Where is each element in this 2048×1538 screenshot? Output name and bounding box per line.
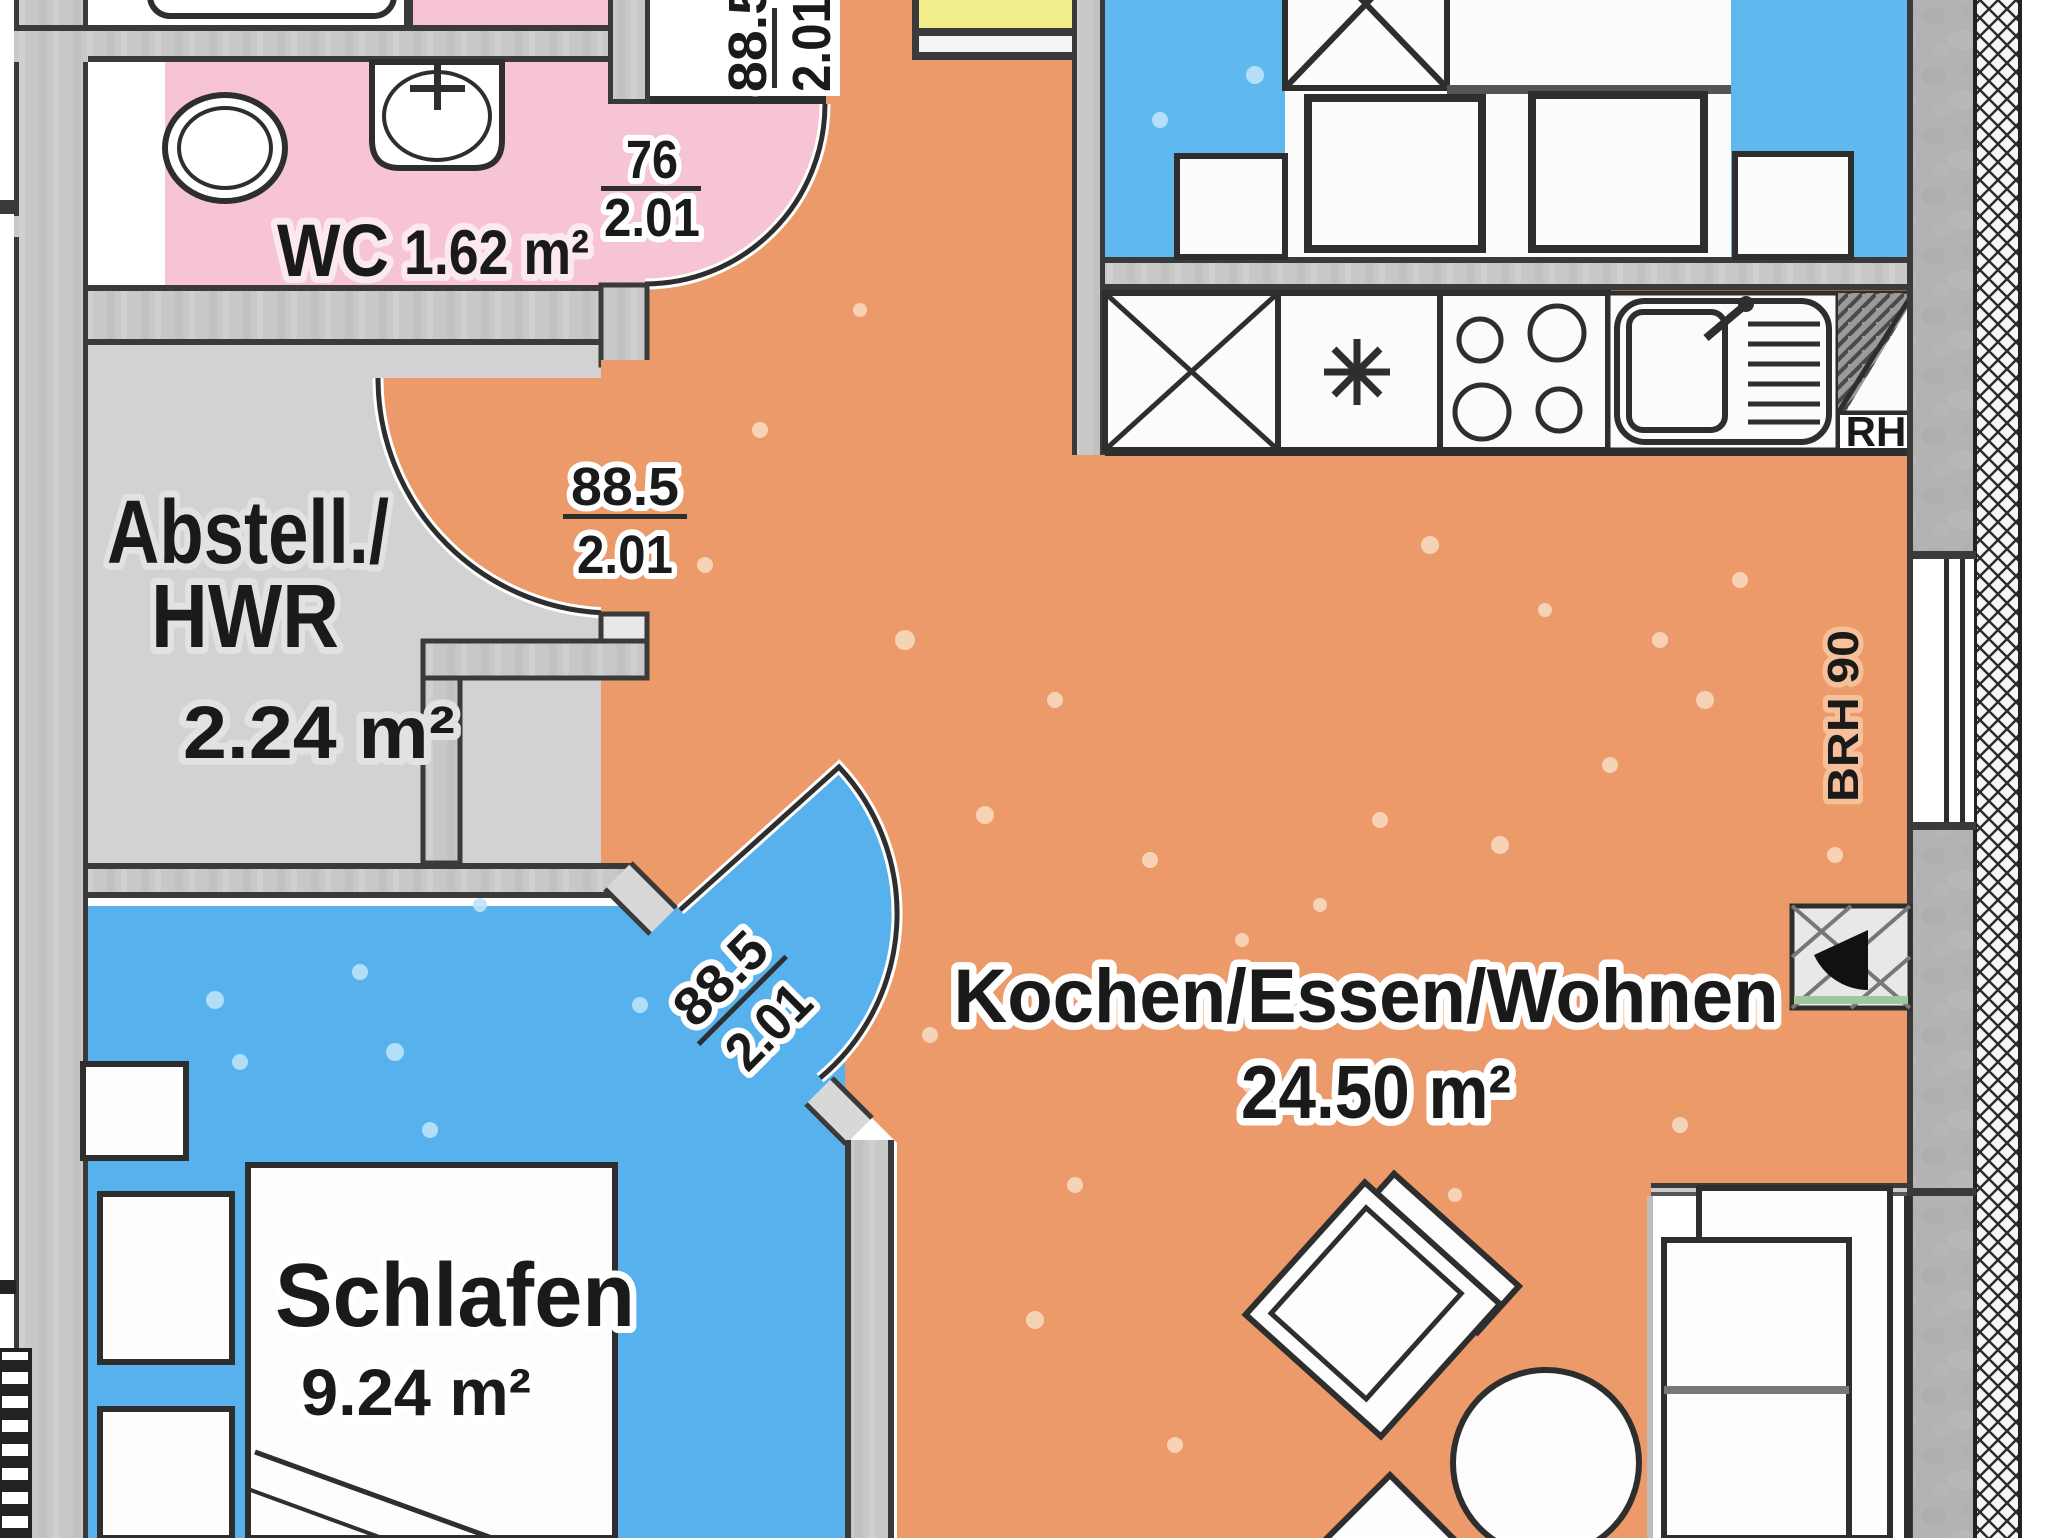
svg-text:1.62 m²: 1.62 m² bbox=[404, 218, 589, 288]
svg-text:Kochen/Essen/Wohnen: Kochen/Essen/Wohnen bbox=[954, 954, 1779, 1039]
svg-text:RH: RH bbox=[1846, 408, 1907, 455]
svg-text:88.5: 88.5 bbox=[571, 457, 679, 517]
svg-text:2.24 m²: 2.24 m² bbox=[183, 691, 455, 774]
svg-text:Schlafen: Schlafen bbox=[275, 1246, 635, 1346]
svg-text:WC: WC bbox=[277, 209, 389, 292]
svg-text:2.01: 2.01 bbox=[577, 525, 673, 585]
svg-text:9.24 m²: 9.24 m² bbox=[301, 1355, 531, 1429]
svg-text:HWR: HWR bbox=[151, 567, 339, 667]
svg-text:2.01: 2.01 bbox=[782, 0, 842, 92]
svg-text:2.01: 2.01 bbox=[604, 188, 700, 248]
svg-text:24.50 m²: 24.50 m² bbox=[1241, 1050, 1511, 1134]
svg-text:76: 76 bbox=[626, 130, 678, 190]
svg-text:BRH 90: BRH 90 bbox=[1819, 630, 1868, 802]
svg-text:88.5: 88.5 bbox=[718, 0, 778, 92]
